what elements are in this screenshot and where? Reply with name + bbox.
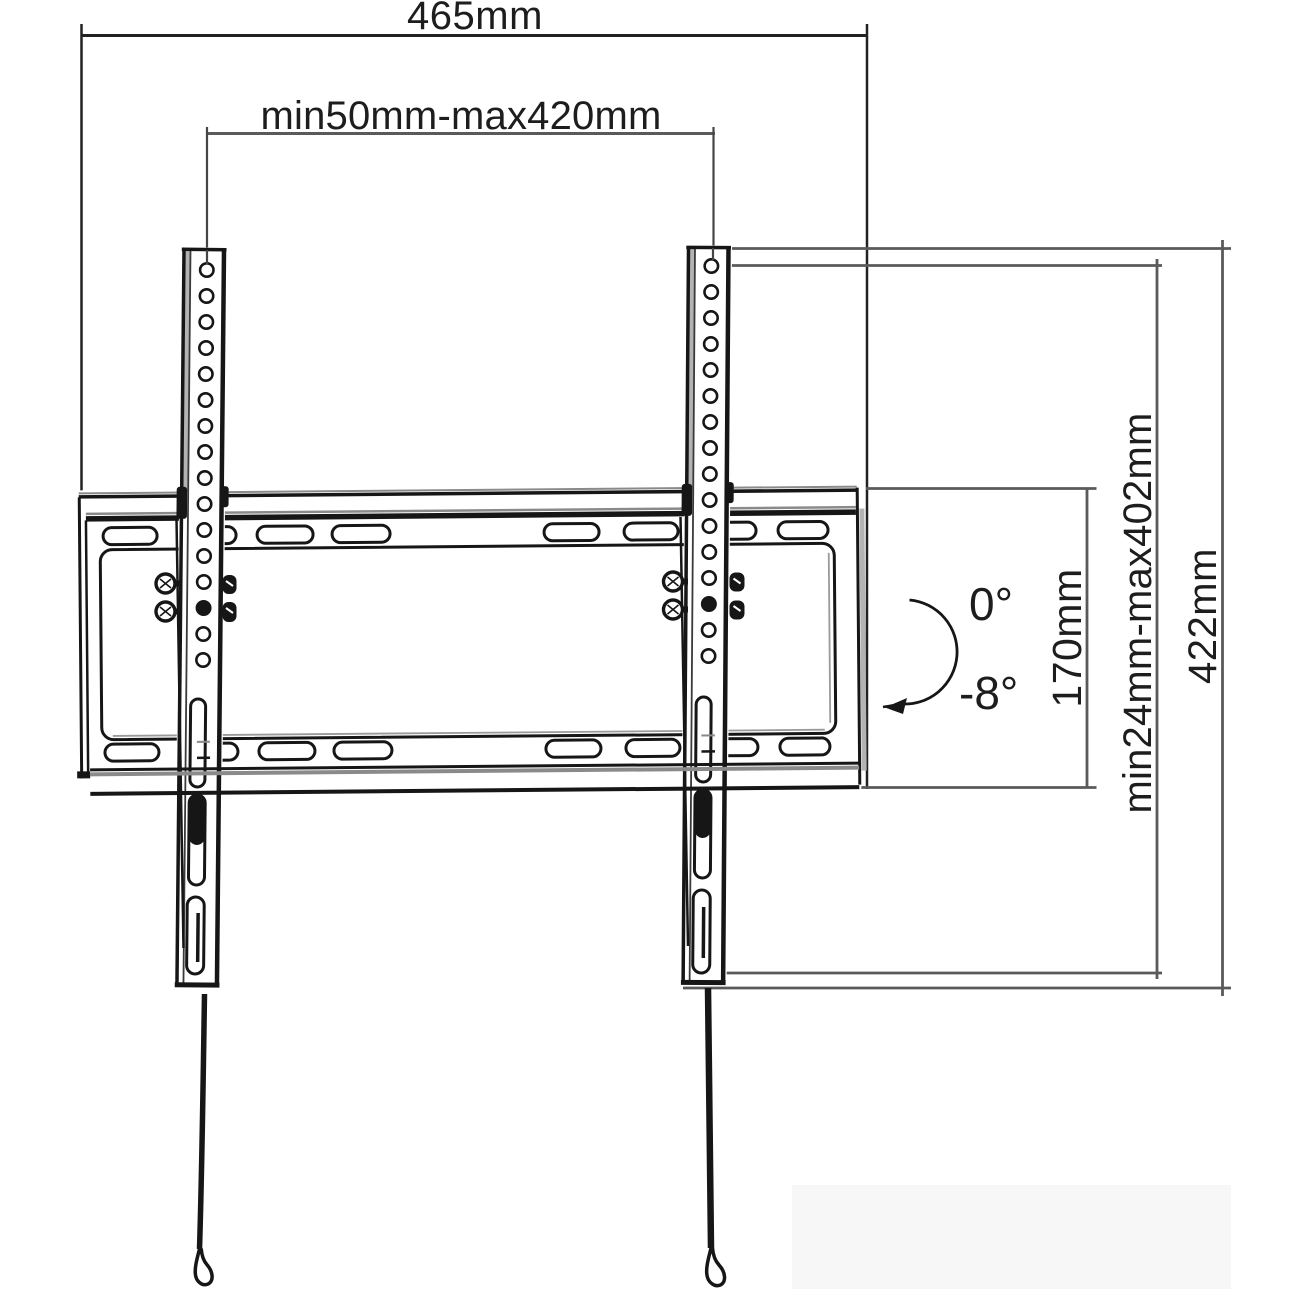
svg-text:422mm: 422mm [1181,548,1225,684]
svg-text:-8°: -8° [959,667,1018,719]
svg-text:min24mm-max402mm: min24mm-max402mm [1116,412,1160,813]
svg-text:170mm: 170mm [1044,568,1090,707]
svg-text:min50mm-max420mm: min50mm-max420mm [260,94,661,138]
svg-text:0°: 0° [969,578,1013,630]
svg-text:465mm: 465mm [407,0,543,38]
